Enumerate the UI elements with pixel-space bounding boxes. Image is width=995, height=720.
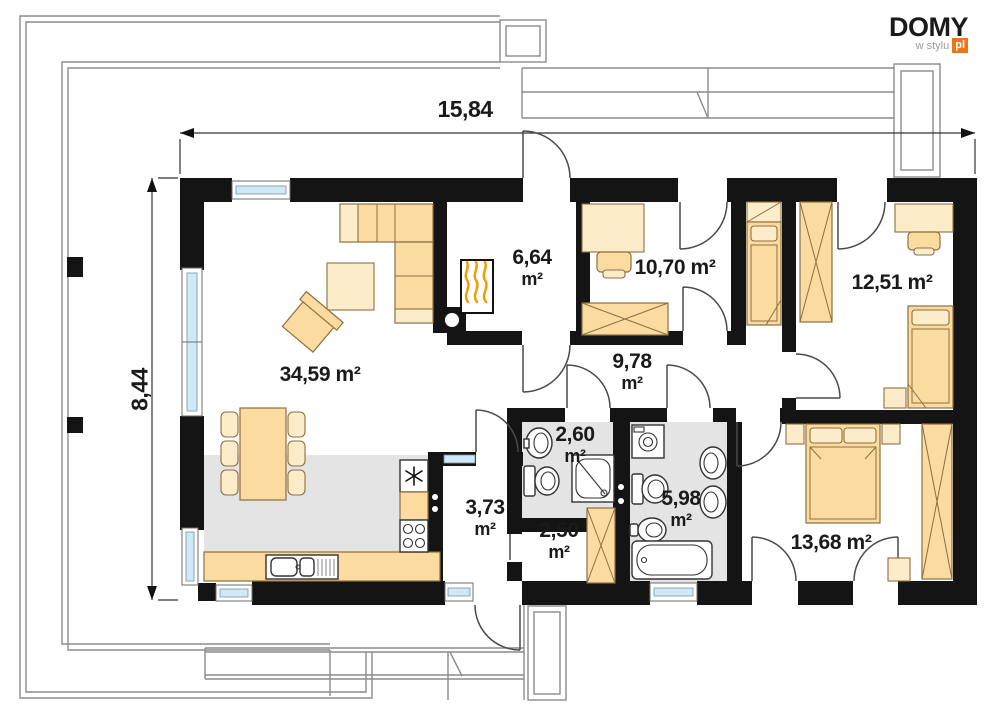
dining-set <box>221 408 305 500</box>
dimension-width: 15,84 <box>400 96 530 123</box>
pillow <box>912 310 949 325</box>
logo-brand: DOMY <box>858 14 968 41</box>
room-area-unit: m² <box>597 374 667 393</box>
door-bedroom2-hall <box>796 354 840 398</box>
terrace-column <box>67 417 83 433</box>
room-label-bedroom1: 10,70 m² <box>600 257 750 280</box>
bedroom3-furniture <box>786 424 952 581</box>
niche-bed <box>747 202 781 325</box>
corner-column <box>198 583 216 601</box>
nightstand <box>786 424 804 444</box>
double-bed <box>806 424 880 523</box>
room-area-unit: m² <box>497 270 567 289</box>
room-area-unit: m² <box>524 543 594 562</box>
coffee-table <box>327 263 374 310</box>
room-area-value: 3,73 <box>449 497 521 520</box>
logo: DOMY w stylu pl <box>858 14 968 53</box>
single-bed <box>908 306 953 408</box>
interior-glazing-strip <box>444 455 475 463</box>
room-label-bath: 5,98 m² <box>648 488 714 530</box>
room-label-boiler: 6,64 m² <box>497 247 567 289</box>
stove-icon <box>400 520 428 552</box>
room-area-unit: m² <box>648 511 714 530</box>
pillow <box>844 428 876 443</box>
toilet <box>524 466 559 496</box>
bathtub <box>632 541 712 579</box>
room-area-value: 5,98 <box>648 488 714 511</box>
room-label-bedroom3: 13,68 m² <box>756 532 906 555</box>
dining-table <box>240 408 286 500</box>
wardrobe <box>922 424 952 579</box>
room-label-wc: 2,60 m² <box>539 424 611 466</box>
desk-chair <box>908 232 940 250</box>
pillow <box>810 428 842 443</box>
furnace-icon <box>461 260 493 313</box>
room-label-hall: 9,78 m² <box>597 351 667 393</box>
washing-machine <box>632 425 664 458</box>
window-top <box>232 181 290 199</box>
wardrobe <box>800 202 832 322</box>
floor-plan: 34,59 m² 10,70 m² 12,51 m² 13,68 m² 6,64… <box>0 0 995 720</box>
window-left <box>182 268 202 416</box>
room-area-value: 2,50 <box>524 520 594 543</box>
washbasin <box>700 447 726 479</box>
door-bedroom2-exterior <box>838 202 885 249</box>
wardrobe <box>582 303 668 335</box>
fridge-icon <box>400 460 428 492</box>
room-label-vestibule: 3,73 m² <box>449 497 521 539</box>
room-label-bedroom2: 12,51 m² <box>817 272 967 295</box>
door-bedroom1-hall <box>683 287 727 331</box>
logo-tagline: w stylu <box>916 40 950 52</box>
terrace-column <box>67 257 83 277</box>
nightstand <box>884 388 906 408</box>
window-bathroom <box>650 583 697 601</box>
room-area-value: 6,64 <box>497 247 567 270</box>
room-area-unit: m² <box>449 520 521 539</box>
room-label-storage: 2,50 m² <box>524 520 594 562</box>
flue-circle <box>445 313 459 327</box>
bedroom2-furniture <box>800 202 953 408</box>
door-bedroom3-hall <box>737 422 781 466</box>
kitchen-cabinet <box>400 492 428 520</box>
room-area-unit: m² <box>539 447 611 466</box>
nightstand <box>882 424 900 444</box>
pillow <box>751 226 777 241</box>
room-area-value: 9,78 <box>597 351 667 374</box>
window-vestibule <box>445 583 473 601</box>
door-boiler-exterior <box>523 131 570 178</box>
dimension-height: 8,44 <box>127 342 154 438</box>
pouf <box>888 558 910 581</box>
room-area-value: 2,60 <box>539 424 611 447</box>
kitchen-sink <box>266 555 338 579</box>
door-boiler-hall <box>523 345 570 392</box>
logo-tld-badge: pl <box>952 38 968 53</box>
desk <box>582 204 644 252</box>
door-bathroom <box>667 365 710 408</box>
door-main-entrance <box>475 605 520 650</box>
desk <box>895 204 953 232</box>
room-label-living: 34,59 m² <box>245 364 395 387</box>
door-bedroom1-exterior <box>680 202 727 249</box>
